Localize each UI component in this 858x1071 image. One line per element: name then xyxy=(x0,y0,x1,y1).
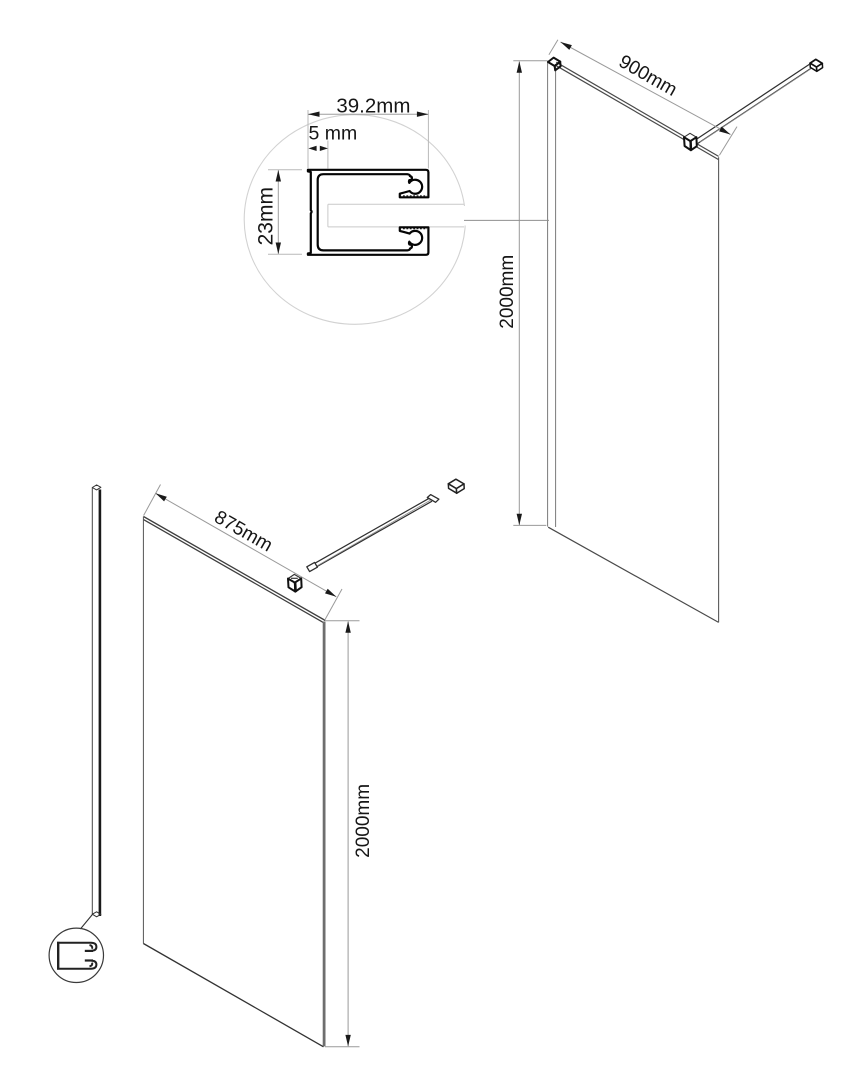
svg-text:2000mm: 2000mm xyxy=(353,784,374,858)
svg-text:2000mm: 2000mm xyxy=(497,255,518,329)
svg-text:39.2mm: 39.2mm xyxy=(336,95,410,118)
svg-text:23mm: 23mm xyxy=(254,187,277,245)
svg-text:5 mm: 5 mm xyxy=(309,122,358,144)
